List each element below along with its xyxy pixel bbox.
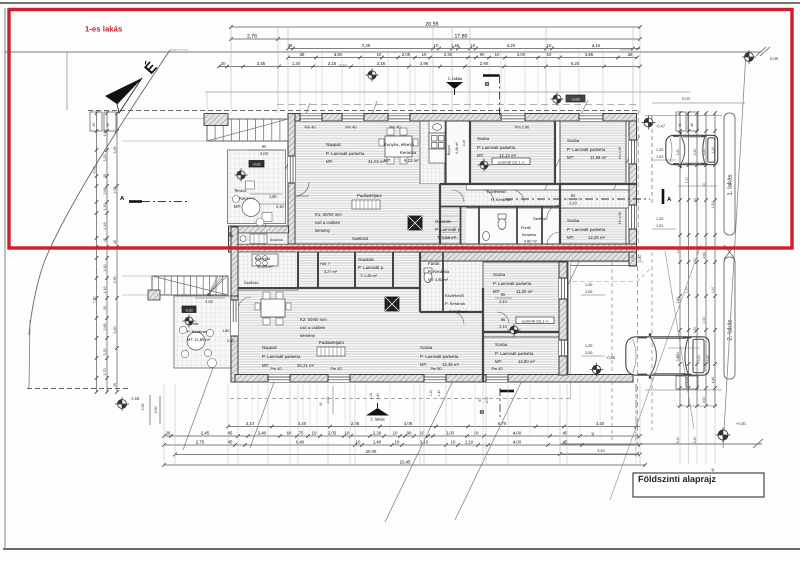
svg-text:12,25 m²: 12,25 m² <box>588 235 606 240</box>
svg-text:6,40: 6,40 <box>296 440 305 445</box>
svg-text:45: 45 <box>288 43 293 48</box>
svg-text:4,80 m²: 4,80 m² <box>524 240 538 244</box>
svg-text:Szoba: Szoba <box>420 345 433 350</box>
svg-text:P: Kerámia: P: Kerámia <box>445 301 466 306</box>
svg-text:Fürdő: Fürdő <box>428 261 440 266</box>
svg-text:3,00: 3,00 <box>154 407 158 414</box>
svg-text:2,60: 2,60 <box>702 252 706 259</box>
svg-text:12,35 m²: 12,35 m² <box>442 362 460 367</box>
svg-text:Pm 40: Pm 40 <box>346 126 357 130</box>
svg-text:3,20: 3,20 <box>113 327 117 334</box>
svg-text:2,40: 2,40 <box>638 255 642 262</box>
svg-text:3,10: 3,10 <box>420 440 429 445</box>
svg-text:3,95: 3,95 <box>420 61 429 66</box>
svg-text:Pm 40: Pm 40 <box>331 367 342 371</box>
svg-text:1,20: 1,20 <box>711 147 715 154</box>
svg-text:-0,56: -0,56 <box>606 355 616 360</box>
svg-text:Szoba: Szoba <box>477 136 490 141</box>
svg-text:-2,68: -2,68 <box>130 396 140 401</box>
svg-text:11,58 m²: 11,58 m² <box>590 155 607 160</box>
svg-text:2,40: 2,40 <box>376 393 380 400</box>
svg-text:20,55: 20,55 <box>426 22 439 28</box>
svg-text:2,00: 2,00 <box>260 151 269 156</box>
svg-text:1,50: 1,50 <box>656 155 663 159</box>
svg-text:Nappali: Nappali <box>326 142 341 147</box>
svg-text:1,10: 1,10 <box>465 440 474 445</box>
svg-text:2,45: 2,45 <box>201 431 210 436</box>
svg-text:2,10: 2,10 <box>569 201 578 206</box>
svg-text:3,40: 3,40 <box>298 421 307 426</box>
svg-text:10: 10 <box>471 43 476 48</box>
svg-text:MT:: MT: <box>384 158 391 163</box>
svg-text:2,00: 2,00 <box>326 397 330 404</box>
svg-text:17,80: 17,80 <box>455 34 468 40</box>
svg-text:45: 45 <box>113 240 117 244</box>
svg-text:-0,47: -0,47 <box>656 124 666 129</box>
svg-text:1,50: 1,50 <box>702 317 706 324</box>
svg-text:1,50: 1,50 <box>585 290 592 294</box>
svg-text:MT: 11,80 m²: MT: 11,80 m² <box>187 337 211 342</box>
svg-text:2,90: 2,90 <box>480 61 489 66</box>
svg-text:Fürdő: Fürdő <box>521 226 531 230</box>
svg-text:2,30: 2,30 <box>373 431 382 436</box>
svg-text:A: A <box>667 196 672 203</box>
svg-text:3,35: 3,35 <box>113 147 117 154</box>
svg-text:45: 45 <box>591 432 595 436</box>
svg-text:2,10: 2,10 <box>246 421 255 426</box>
svg-text:1,48: 1,48 <box>103 223 107 230</box>
svg-text:Pm 1,50: Pm 1,50 <box>618 212 622 224</box>
svg-text:1,50: 1,50 <box>656 224 663 228</box>
svg-text:-0,05: -0,05 <box>571 98 579 102</box>
svg-text:45: 45 <box>690 123 694 127</box>
svg-text:1,60: 1,60 <box>103 265 107 272</box>
svg-text:K1: 60/60 mm: K1: 60/60 mm <box>315 212 342 217</box>
svg-text:1. lakás: 1. lakás <box>448 76 462 81</box>
svg-text:P: Laminált parketta: P: Laminált parketta <box>326 151 365 156</box>
svg-text:Szoba: Szoba <box>567 138 580 143</box>
svg-text:4,45: 4,45 <box>711 377 715 384</box>
svg-text:MT:: MT: <box>567 235 574 240</box>
svg-text:26,21 m²: 26,21 m² <box>297 363 315 368</box>
svg-text:cső a csőben: cső a csőben <box>315 220 341 225</box>
svg-text:P: Laminált parketta: P: Laminált parketta <box>567 147 606 152</box>
svg-text:10: 10 <box>422 52 427 57</box>
svg-text:±0,00=Bf 231,1 m: ±0,00=Bf 231,1 m <box>498 160 525 164</box>
svg-text:1,10: 1,10 <box>103 204 107 211</box>
svg-text:B: B <box>479 409 486 414</box>
svg-text:Konyha, étkező: Konyha, étkező <box>384 142 414 147</box>
svg-text:90: 90 <box>262 144 267 149</box>
svg-text:Szoba: Szoba <box>493 272 506 277</box>
svg-text:1,05: 1,05 <box>631 255 635 262</box>
svg-text:cső a csőben: cső a csőben <box>300 325 326 330</box>
svg-text:3,05: 3,05 <box>404 421 413 426</box>
svg-text:3,00: 3,00 <box>141 404 145 411</box>
svg-text:Gardrób: Gardrób <box>358 257 374 262</box>
svg-text:Szellőző: Szellőző <box>533 217 547 221</box>
svg-text:Szoba: Szoba <box>495 342 508 347</box>
svg-text:P: Laminált parketta: P: Laminált parketta <box>262 354 301 359</box>
svg-text:4,00: 4,00 <box>513 440 522 445</box>
svg-text:1,40: 1,40 <box>373 440 382 445</box>
svg-text:10: 10 <box>547 43 552 48</box>
svg-text:2,05: 2,05 <box>402 52 411 57</box>
svg-text:2,45: 2,45 <box>257 61 266 66</box>
svg-text:2,15: 2,15 <box>377 61 386 66</box>
svg-text:10: 10 <box>377 52 382 57</box>
svg-text:10: 10 <box>495 52 500 57</box>
svg-text:P: Laminált parketta: P: Laminált parketta <box>420 354 459 359</box>
svg-text:45: 45 <box>628 52 633 57</box>
svg-text:T: 5,79 m²: T: 5,79 m² <box>449 309 467 314</box>
svg-text:Terasz: Terasz <box>234 188 247 193</box>
svg-text:2,98: 2,98 <box>113 187 117 194</box>
svg-text:1,50: 1,50 <box>711 202 715 209</box>
svg-text:30: 30 <box>166 431 171 436</box>
svg-text:P: Laminált p.: P: Laminált p. <box>358 265 384 270</box>
svg-text:3,35: 3,35 <box>113 277 117 284</box>
svg-text:Kerámia: Kerámia <box>270 238 283 242</box>
svg-text:Közlekedő: Közlekedő <box>487 189 506 194</box>
svg-text:Pm 40: Pm 40 <box>492 367 503 371</box>
svg-text:MT:: MT: <box>567 155 574 160</box>
svg-text:-2,61: -2,61 <box>338 63 348 68</box>
svg-text:kémény: kémény <box>315 228 331 233</box>
svg-text:-0,02: -0,02 <box>185 308 193 312</box>
svg-text:2,10: 2,10 <box>499 299 508 304</box>
svg-text:3,40: 3,40 <box>597 448 606 453</box>
svg-text:Nappali: Nappali <box>262 345 277 350</box>
svg-text:-0,02: -0,02 <box>252 163 260 167</box>
svg-text:90: 90 <box>480 52 485 57</box>
svg-text:kémény: kémény <box>300 333 316 338</box>
svg-text:1,80: 1,80 <box>269 194 278 199</box>
svg-text:MT:: MT: <box>495 359 502 364</box>
svg-text:2,68: 2,68 <box>103 324 107 331</box>
svg-text:T: 1,48 m²: T: 1,48 m² <box>360 274 378 278</box>
svg-text:Pm 40: Pm 40 <box>390 126 401 130</box>
svg-text:3,50: 3,50 <box>693 327 697 334</box>
svg-text:MT: 4,80 m²: MT: 4,80 m² <box>428 278 449 282</box>
svg-text:5,00: 5,00 <box>682 96 691 101</box>
svg-text:K2: 60/60 mm: K2: 60/60 mm <box>300 317 327 322</box>
svg-text:MT:: MT: <box>326 159 333 164</box>
svg-text:P: Laminált parketta: P: Laminált parketta <box>477 145 516 150</box>
svg-text:1,70: 1,70 <box>103 369 107 376</box>
svg-text:2,40: 2,40 <box>227 339 234 343</box>
svg-text:20,05: 20,05 <box>366 449 377 454</box>
svg-text:MT:: MT: <box>262 363 269 368</box>
svg-text:10: 10 <box>702 183 706 187</box>
svg-text:2,05: 2,05 <box>328 431 337 436</box>
svg-text:2,40: 2,40 <box>276 204 285 209</box>
svg-text:23,45: 23,45 <box>400 460 411 465</box>
svg-text:Bejáró: Bejáró <box>447 145 451 155</box>
svg-text:7,20: 7,20 <box>92 297 96 304</box>
svg-text:P: Kerámia: P: Kerámia <box>491 197 512 202</box>
svg-text:3,40: 3,40 <box>596 421 605 426</box>
svg-text:4,50: 4,50 <box>334 52 343 57</box>
svg-text:45: 45 <box>711 468 715 472</box>
svg-text:6,25: 6,25 <box>571 61 580 66</box>
svg-text:3,27 m²: 3,27 m² <box>324 270 338 274</box>
svg-text:45: 45 <box>106 123 110 127</box>
svg-text:Pm 1,50: Pm 1,50 <box>618 147 622 159</box>
svg-text:Szoba: Szoba <box>567 218 580 223</box>
svg-text:2,68: 2,68 <box>103 188 107 195</box>
svg-text:T: 3,68 m²: T: 3,68 m² <box>437 235 457 240</box>
svg-text:12,80 m²: 12,80 m² <box>518 359 536 364</box>
svg-text:4,48 m²: 4,48 m² <box>455 141 459 154</box>
svg-text:0,08: 0,08 <box>770 56 779 61</box>
svg-text:9,25: 9,25 <box>92 167 96 174</box>
svg-text:20: 20 <box>103 306 107 310</box>
svg-text:2,76: 2,76 <box>247 34 257 40</box>
svg-text:7,35: 7,35 <box>362 43 371 48</box>
svg-text:10: 10 <box>356 440 361 445</box>
svg-text:10,93 m²: 10,93 m² <box>257 264 273 269</box>
svg-text:1,05: 1,05 <box>369 393 373 400</box>
svg-text:90: 90 <box>478 398 482 402</box>
svg-text:3,20: 3,20 <box>103 155 107 162</box>
svg-text:3,20: 3,20 <box>693 149 697 156</box>
svg-text:10: 10 <box>393 431 398 436</box>
svg-text:1,40: 1,40 <box>437 390 441 397</box>
svg-text:+0,81: +0,81 <box>736 421 747 426</box>
svg-text:1,50: 1,50 <box>585 351 592 355</box>
svg-text:1,20: 1,20 <box>585 344 592 348</box>
svg-text:P: Laminált parketta: P: Laminált parketta <box>567 227 606 232</box>
svg-text:Földszinti alaprajz: Földszinti alaprajz <box>638 474 717 484</box>
svg-text:Padlásfeljáró: Padlásfeljáró <box>357 193 382 198</box>
svg-text:2,80: 2,80 <box>676 297 680 304</box>
svg-text:10: 10 <box>474 431 479 436</box>
svg-text:90: 90 <box>207 292 212 297</box>
svg-text:3,50: 3,50 <box>702 397 706 404</box>
svg-text:1,90: 1,90 <box>103 130 107 137</box>
svg-text:60: 60 <box>287 431 292 436</box>
svg-text:P: Laminált p.: P: Laminált p. <box>435 227 461 232</box>
svg-text:Pm 2,90: Pm 2,90 <box>515 126 529 130</box>
svg-text:Szellőző: Szellőző <box>244 281 258 285</box>
svg-text:MT:: MT: <box>420 362 427 367</box>
svg-text:2,05: 2,05 <box>351 421 360 426</box>
svg-text:P: Laminált parketta: P: Laminált parketta <box>493 281 532 286</box>
svg-text:Pm 40: Pm 40 <box>305 126 316 130</box>
svg-text:Szellőző: Szellőző <box>352 236 369 241</box>
svg-text:2,10: 2,10 <box>499 324 508 329</box>
svg-text:Kerámia: Kerámia <box>522 233 537 237</box>
svg-text:P: Laminált parketta: P: Laminált parketta <box>495 351 534 356</box>
svg-text:3,00: 3,00 <box>517 52 526 57</box>
svg-text:90: 90 <box>319 402 323 406</box>
svg-text:Hál. ?: Hál. ? <box>320 262 330 266</box>
svg-text:96: 96 <box>501 317 506 322</box>
svg-text:2,00: 2,00 <box>485 397 489 404</box>
svg-text:1,20: 1,20 <box>585 283 592 287</box>
svg-text:2,75: 2,75 <box>196 440 205 445</box>
svg-text:2,40: 2,40 <box>258 431 267 436</box>
svg-text:3,85: 3,85 <box>585 52 594 57</box>
svg-text:45: 45 <box>678 123 682 127</box>
svg-text:1,20: 1,20 <box>711 287 715 294</box>
svg-text:1,80: 1,80 <box>222 329 229 333</box>
svg-text:3,20: 3,20 <box>693 437 697 444</box>
svg-text:10: 10 <box>547 52 552 57</box>
svg-text:96: 96 <box>229 233 234 238</box>
svg-text:P: Kerámia: P: Kerámia <box>187 329 208 334</box>
svg-text:45: 45 <box>228 440 233 445</box>
svg-text:Közlekedő: Közlekedő <box>445 293 464 298</box>
svg-text:4,20: 4,20 <box>507 43 516 48</box>
svg-text:90: 90 <box>571 193 576 198</box>
svg-text:31,03 m²: 31,03 m² <box>368 159 386 164</box>
svg-text:10: 10 <box>395 440 400 445</box>
svg-text:1,10: 1,10 <box>684 177 688 184</box>
svg-text:45: 45 <box>228 431 233 436</box>
svg-text:4,00: 4,00 <box>513 431 522 436</box>
svg-text:B: B <box>484 81 491 86</box>
svg-text:3,20: 3,20 <box>676 355 680 362</box>
svg-text:3,20: 3,20 <box>706 355 710 362</box>
svg-text:Pm 40: Pm 40 <box>271 367 282 371</box>
svg-text:meglevo kerites: meglevo kerites <box>170 49 189 52</box>
svg-text:MT:: MT: <box>477 153 484 158</box>
svg-text:9,12 m²: 9,12 m² <box>404 158 419 163</box>
svg-text:10: 10 <box>312 431 317 436</box>
svg-text:3,20: 3,20 <box>676 437 680 444</box>
svg-text:3,20: 3,20 <box>676 149 680 156</box>
svg-text:4,10: 4,10 <box>592 43 601 48</box>
svg-text:11,20 m²: 11,20 m² <box>516 289 533 294</box>
svg-text:1,10: 1,10 <box>103 287 107 294</box>
svg-text:1,20: 1,20 <box>656 148 663 152</box>
svg-text:A: A <box>120 195 125 202</box>
svg-text:1,20: 1,20 <box>656 217 663 221</box>
svg-text:±0,00=Bf 231,1 m: ±0,00=Bf 231,1 m <box>522 319 549 323</box>
svg-text:Kerámia: Kerámia <box>400 150 417 155</box>
svg-text:Kerámia: Kerámia <box>255 256 271 261</box>
svg-text:1,30: 1,30 <box>292 61 301 66</box>
svg-text:10: 10 <box>345 431 350 436</box>
svg-text:2,30: 2,30 <box>444 52 453 57</box>
svg-text:90: 90 <box>501 292 506 297</box>
svg-text:45: 45 <box>92 123 96 127</box>
svg-text:Gardrób: Gardrób <box>435 219 451 224</box>
svg-text:telekhatar: telekhatar <box>620 49 632 52</box>
svg-text:2,15: 2,15 <box>328 61 337 66</box>
svg-text:12,12 m²: 12,12 m² <box>499 153 517 158</box>
svg-text:2. lakás: 2. lakás <box>370 417 384 422</box>
svg-text:1,20: 1,20 <box>429 390 433 397</box>
svg-text:10: 10 <box>434 43 439 48</box>
svg-text:45: 45 <box>300 52 305 57</box>
svg-text:P: Kerámia: P: Kerámia <box>428 269 450 274</box>
svg-text:3,20: 3,20 <box>697 355 701 362</box>
svg-text:2,10: 2,10 <box>462 140 466 147</box>
svg-text:1-es lakás: 1-es lakás <box>85 25 123 34</box>
svg-text:6,70: 6,70 <box>498 421 507 426</box>
svg-text:Pm 90: Pm 90 <box>431 367 442 371</box>
svg-text:MT:: MT: <box>493 289 500 294</box>
svg-text:45: 45 <box>113 383 117 387</box>
svg-text:2,00: 2,00 <box>205 299 214 304</box>
svg-text:90: 90 <box>407 431 412 436</box>
svg-text:Padlásfeljáró: Padlásfeljáró <box>319 340 344 345</box>
svg-text:30: 30 <box>221 61 226 66</box>
svg-text:10: 10 <box>451 440 456 445</box>
svg-text:3,20: 3,20 <box>103 349 107 356</box>
svg-text:3,00: 3,00 <box>446 431 455 436</box>
svg-text:1. lakás: 1. lakás <box>727 174 734 195</box>
